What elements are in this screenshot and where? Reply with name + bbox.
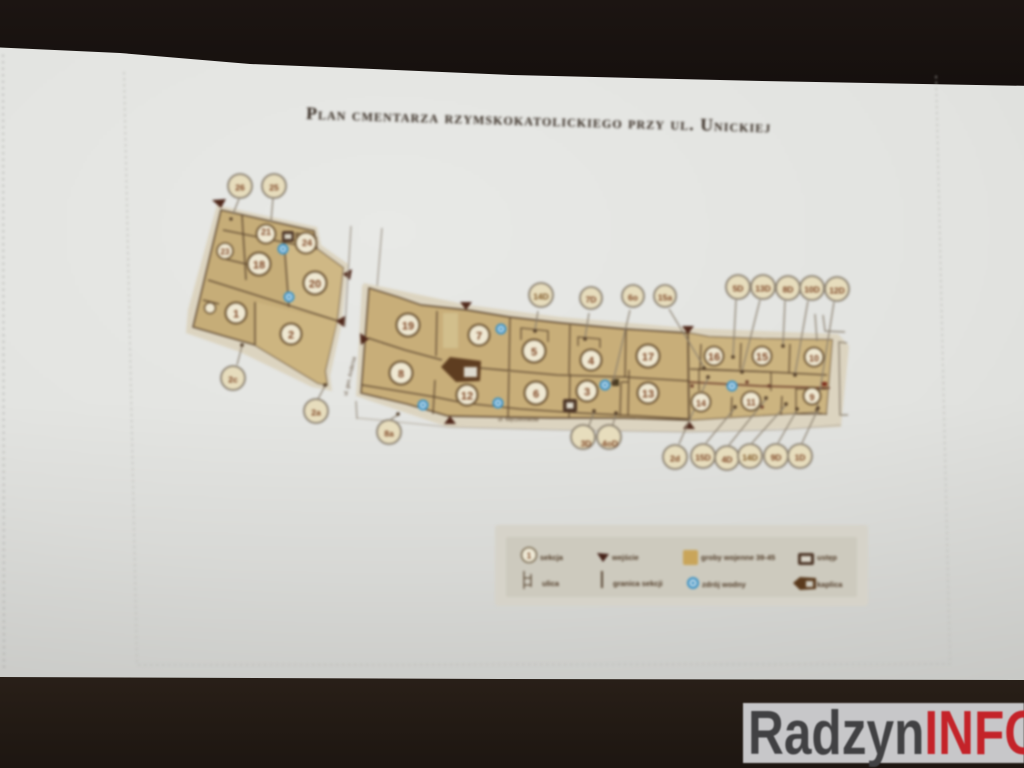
svg-text:5: 5 bbox=[531, 347, 537, 359]
svg-text:15a: 15a bbox=[658, 293, 672, 303]
svg-text:ul. Męczenników: ul. Męczenników bbox=[498, 417, 539, 423]
svg-text:12D: 12D bbox=[829, 286, 845, 296]
svg-text:granica sekcji: granica sekcji bbox=[613, 579, 663, 588]
svg-text:17: 17 bbox=[642, 352, 654, 364]
svg-text:6o: 6o bbox=[628, 293, 638, 303]
svg-text:4oD: 4oD bbox=[602, 439, 618, 449]
svg-text:9D: 9D bbox=[771, 453, 782, 463]
svg-text:19: 19 bbox=[402, 321, 414, 333]
svg-text:ustęp: ustęp bbox=[817, 553, 837, 562]
svg-text:ul. gen. Andersa: ul. gen. Andersa bbox=[343, 355, 358, 396]
svg-text:1: 1 bbox=[527, 552, 532, 561]
svg-text:7D: 7D bbox=[586, 295, 597, 305]
svg-text:kaplica: kaplica bbox=[817, 580, 843, 589]
svg-text:2: 2 bbox=[288, 330, 294, 342]
svg-text:8a: 8a bbox=[384, 429, 394, 439]
svg-text:24: 24 bbox=[302, 238, 312, 248]
svg-text:7: 7 bbox=[476, 331, 482, 343]
svg-text:23: 23 bbox=[221, 248, 230, 257]
svg-text:8D: 8D bbox=[783, 285, 794, 295]
svg-text:12: 12 bbox=[461, 391, 473, 403]
svg-text:1D: 1D bbox=[795, 453, 806, 463]
svg-text:8: 8 bbox=[398, 369, 404, 381]
svg-text:14D: 14D bbox=[533, 292, 549, 302]
svg-text:6: 6 bbox=[533, 389, 539, 401]
svg-text:14D: 14D bbox=[742, 453, 758, 463]
svg-text:18: 18 bbox=[253, 260, 265, 272]
svg-text:ulica: ulica bbox=[542, 579, 560, 588]
svg-text:13D: 13D bbox=[755, 284, 771, 294]
svg-text:Plan cmentarza rzymskokatolick: Plan cmentarza rzymskokatolickiego przy … bbox=[306, 103, 772, 136]
svg-text:25: 25 bbox=[269, 183, 279, 193]
svg-text:3: 3 bbox=[584, 387, 590, 399]
svg-text:26: 26 bbox=[235, 183, 245, 193]
svg-text:13: 13 bbox=[642, 389, 654, 401]
svg-text:10: 10 bbox=[809, 354, 819, 364]
svg-text:3D: 3D bbox=[581, 439, 592, 449]
svg-text:11: 11 bbox=[746, 398, 756, 408]
svg-text:groby wojenne 39-45: groby wojenne 39-45 bbox=[701, 553, 775, 562]
svg-text:14: 14 bbox=[696, 399, 706, 409]
svg-text:2d: 2d bbox=[670, 454, 680, 464]
svg-text:2a: 2a bbox=[311, 408, 321, 418]
svg-text:2c: 2c bbox=[228, 375, 238, 385]
svg-text:4: 4 bbox=[588, 356, 595, 368]
svg-text:10D: 10D bbox=[804, 285, 820, 295]
svg-text:4D: 4D bbox=[722, 455, 733, 465]
svg-text:15: 15 bbox=[756, 352, 768, 364]
svg-text:sekcja: sekcja bbox=[540, 553, 564, 562]
svg-text:16: 16 bbox=[708, 352, 720, 364]
svg-text:15D: 15D bbox=[695, 453, 711, 463]
svg-text:20: 20 bbox=[309, 279, 321, 291]
svg-text:1: 1 bbox=[233, 309, 239, 321]
svg-text:5D: 5D bbox=[733, 284, 744, 294]
svg-text:zdrój wodny: zdrój wodny bbox=[702, 580, 747, 589]
svg-text:21: 21 bbox=[261, 227, 271, 237]
svg-text:9: 9 bbox=[809, 393, 814, 403]
svg-text:wejście: wejście bbox=[611, 553, 639, 562]
